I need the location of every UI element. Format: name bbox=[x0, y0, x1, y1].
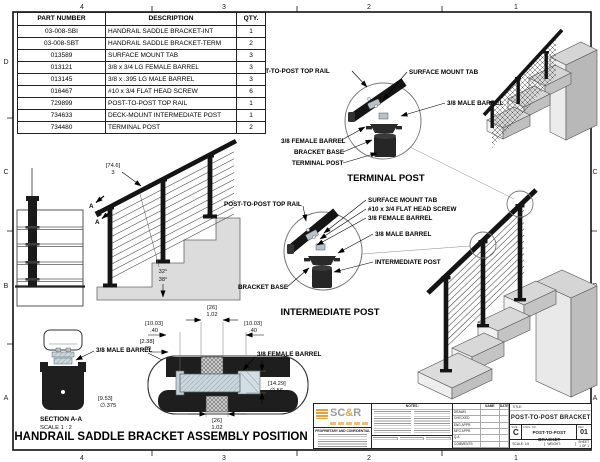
label-bracket-base: BRACKET BASE bbox=[238, 284, 288, 291]
approval-row: COMMENTS: bbox=[453, 442, 510, 448]
label-intermediate-post: INTERMEDIATE POST bbox=[375, 259, 441, 266]
zone-col: 1 bbox=[514, 4, 518, 11]
notes-fine-print bbox=[374, 411, 410, 433]
angle-bottom-label: 38° bbox=[159, 277, 168, 283]
intermediate-detail-title: INTERMEDIATE POST bbox=[280, 307, 379, 318]
zone-row: C bbox=[3, 169, 8, 176]
iso-stair-small bbox=[484, 30, 597, 148]
company-logo-icon bbox=[316, 408, 328, 419]
col-part-number: PART NUMBER bbox=[18, 13, 106, 26]
dim-height-mm: [14.29] bbox=[268, 381, 286, 387]
dim-left-mm: [10.03] bbox=[145, 321, 163, 327]
dim-left2-in: .09 bbox=[143, 346, 151, 352]
table-row: 729899POST-TO-POST TOP RAIL1 bbox=[18, 98, 266, 110]
dim-top-in: 1.02 bbox=[206, 312, 217, 318]
section-aa-title: SECTION A-A bbox=[40, 416, 82, 423]
front-elevation-view bbox=[15, 168, 85, 306]
col-qty: QTY. bbox=[237, 13, 266, 26]
zone-col: 3 bbox=[222, 455, 226, 462]
material-finish-row bbox=[372, 435, 451, 441]
dim-barrel-in: ∅.375 bbox=[100, 402, 116, 409]
zone-row: B bbox=[4, 283, 9, 290]
iso-stair-large bbox=[418, 190, 597, 399]
logo-sc: SC bbox=[330, 407, 345, 419]
drawing-sheet: 4 3 2 1 4 3 2 1 D C B A D C B A bbox=[0, 0, 600, 462]
parts-table-body: 03-008-SBIHANDRAIL SADDLE BRACKET-INT103… bbox=[18, 26, 266, 134]
table-row: 013589SURFACE MOUNT TAB3 bbox=[18, 50, 266, 62]
zone-col: 1 bbox=[514, 455, 518, 462]
logo-subtitle-lines bbox=[330, 422, 368, 425]
section-cut-label: A bbox=[89, 203, 94, 210]
zone-col: 2 bbox=[367, 455, 371, 462]
angle-top-label: 32° bbox=[159, 269, 168, 275]
proprietary-fine-print bbox=[318, 434, 367, 448]
title-block-logo-cell: SC&R PROPRIETARY AND CONFIDENTIAL bbox=[314, 404, 372, 448]
zone-row: C bbox=[592, 169, 597, 176]
label-female-barrel: 3/8 FEMALE BARREL bbox=[281, 138, 346, 145]
zone-col: 2 bbox=[367, 4, 371, 11]
dim-right-mm: [10.03] bbox=[244, 321, 262, 327]
dwg-label: DWG. NO. bbox=[523, 425, 575, 429]
size-value: C bbox=[513, 428, 519, 437]
label-terminal-post: TERMINAL POST bbox=[292, 160, 343, 167]
zone-col: 3 bbox=[222, 4, 226, 11]
table-row: 03-008-SBTHANDRAIL SADDLE BRACKET-TERM2 bbox=[18, 38, 266, 50]
parts-table-header-row: PART NUMBER DESCRIPTION QTY. bbox=[18, 13, 266, 26]
section-cut-label: A bbox=[95, 219, 100, 226]
dim-left-in: .40 bbox=[150, 328, 158, 334]
label-female-barrel: 3/8 FEMALE BARREL bbox=[368, 215, 433, 222]
rev-value: 01 bbox=[580, 429, 588, 436]
zone-col: 4 bbox=[80, 4, 84, 11]
label-surface-tab: SURFACE MOUNT TAB bbox=[368, 197, 438, 204]
parts-table: PART NUMBER DESCRIPTION QTY. 03-008-SBIH… bbox=[17, 12, 266, 134]
zone-col: 4 bbox=[80, 455, 84, 462]
terminal-post-detail: POST-TO-POST TOP RAIL SURFACE MOUNT TAB … bbox=[252, 68, 503, 184]
scale-value: SCALE: 1:8 bbox=[510, 442, 545, 446]
label-male-barrel: 3/8 MALE BARREL bbox=[375, 231, 431, 238]
label-top-rail: POST-TO-POST TOP RAIL bbox=[224, 201, 302, 208]
zone-row: A bbox=[4, 395, 9, 402]
assembly-caption: HANDRAIL SADDLE BRACKET ASSEMBLY POSITIO… bbox=[14, 431, 307, 443]
approvals-date-col: DATE bbox=[500, 404, 510, 409]
proprietary-heading: PROPRIETARY AND CONFIDENTIAL bbox=[314, 427, 371, 433]
label-flat-head-screw: #10 x 3/4 FLAT HEAD SCREW bbox=[368, 206, 456, 213]
dim-barrel-mm: [9.53] bbox=[98, 396, 113, 402]
col-description: DESCRIPTION bbox=[106, 13, 237, 26]
table-row: 016467#10 x 3/4 FLAT HEAD SCREW6 bbox=[18, 86, 266, 98]
table-row: 0131453/8 x .395 LG MALE BARREL3 bbox=[18, 74, 266, 86]
table-row: 734480TERMINAL POST2 bbox=[18, 122, 266, 134]
approvals-rows: DRAWNCHECKEDENG APPR.MFG APPR.Q.A.COMMEN… bbox=[453, 410, 510, 448]
drawing-title: POST-TO-POST BRACKET bbox=[510, 411, 591, 424]
zone-row: A bbox=[593, 395, 598, 402]
title-label: TITLE: bbox=[510, 404, 591, 411]
approvals-name-col: NAME bbox=[481, 404, 500, 409]
stair-side-view: [74.6] 3 A A 32° 38° bbox=[89, 141, 240, 300]
title-block: SC&R PROPRIETARY AND CONFIDENTIAL NOTES:… bbox=[313, 403, 592, 449]
sheet-value: SHEET 1 OF 1 bbox=[576, 440, 591, 448]
label-female-barrel: 3/8 FEMALE BARREL bbox=[257, 351, 322, 358]
company-logo: SC&R bbox=[314, 404, 371, 421]
weight-label: WEIGHT: bbox=[545, 442, 576, 446]
dim-bottom-mm: [26] bbox=[212, 418, 222, 424]
tolerance-fine-print bbox=[414, 411, 450, 433]
dim-left2-mm: [2.38] bbox=[140, 339, 155, 345]
title-block-title-cell: TITLE: POST-TO-POST BRACKET SIZEC DWG. N… bbox=[510, 404, 591, 448]
dim-height-in: ∅.56 bbox=[270, 387, 283, 394]
terminal-detail-title: TERMINAL POST bbox=[347, 173, 425, 184]
table-row: 03-008-SBIHANDRAIL SADDLE BRACKET-INT1 bbox=[18, 26, 266, 38]
table-row: 734633DECK-MOUNT INTERMEDIATE POST1 bbox=[18, 110, 266, 122]
logo-r: R bbox=[353, 407, 361, 419]
label-surface-tab: SURFACE MOUNT TAB bbox=[409, 69, 479, 76]
title-block-approvals-cell: NAME DATE DRAWNCHECKEDENG APPR.MFG APPR.… bbox=[453, 404, 511, 448]
label-bracket-base: BRACKET BASE bbox=[294, 149, 344, 156]
dim-rail-length-in: 3 bbox=[111, 170, 114, 176]
table-row: 0131213/8 x 3/4 LG FEMALE BARREL3 bbox=[18, 62, 266, 74]
title-block-notes-cell: NOTES: bbox=[372, 404, 452, 448]
dim-top-mm: [26] bbox=[207, 305, 217, 311]
dim-rail-length-mm: [74.6] bbox=[106, 163, 121, 169]
zone-row: D bbox=[3, 59, 8, 66]
dim-right-in: .40 bbox=[249, 328, 257, 334]
